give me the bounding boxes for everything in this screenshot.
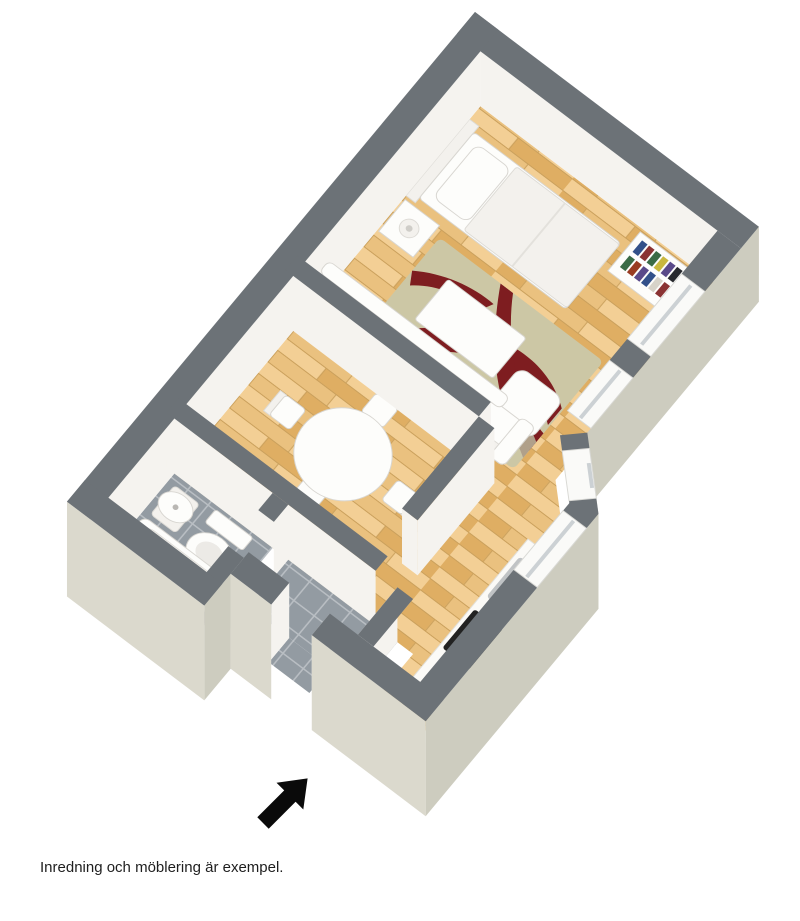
floor-plan-rendering: Inredning och möblering är exempel. — [0, 0, 800, 921]
caption: Inredning och möblering är exempel. — [40, 859, 283, 876]
entrance-arrow-icon — [257, 778, 307, 828]
floor-plan-page: Inredning och möblering är exempel. — [0, 0, 800, 921]
